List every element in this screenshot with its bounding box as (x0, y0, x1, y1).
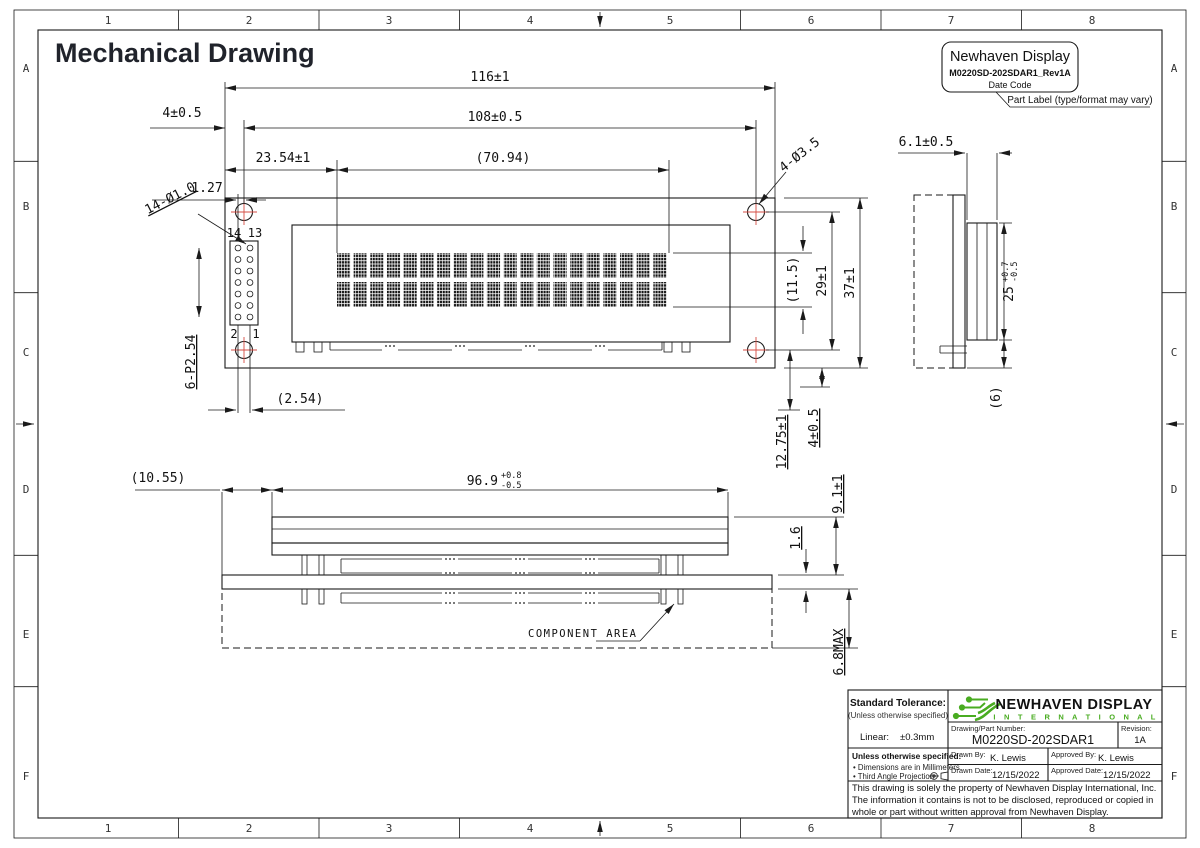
note-projection: • Third Angle Projection (853, 772, 934, 781)
dim-254: (2.54) (277, 392, 324, 407)
dim-connector-pitch: 6-P2.54 (184, 334, 199, 389)
bottom-bezel (272, 517, 728, 543)
dim-969-group: 96.9 +0.8 -0.5 (467, 471, 522, 491)
zone-col: 2 (246, 822, 253, 835)
part-label-datecode: Date Code (988, 80, 1031, 90)
side-display-module (967, 223, 997, 340)
dim-16: 1.6 (789, 526, 804, 549)
zone-row: F (1171, 770, 1178, 783)
zone-col: 8 (1089, 822, 1096, 835)
part-label-box: Newhaven Display M0220SD-202SDAR1_Rev1A … (942, 42, 1153, 107)
side-pcb (953, 195, 965, 368)
zone-col: 6 (808, 822, 815, 835)
connector-outline (230, 241, 258, 325)
dim-969: 96.9 (467, 474, 498, 489)
zone-col: 4 (527, 822, 534, 835)
zone-col: 5 (667, 822, 674, 835)
tolerance-sub: (Unless otherwise specified) (848, 711, 948, 720)
pin-label-2: 2 (230, 327, 237, 341)
zone-row: D (23, 483, 30, 496)
zone-col: 7 (948, 14, 955, 27)
dim-1275: 12.75±1 (775, 415, 790, 470)
zone-col: 4 (527, 14, 534, 27)
dim-108: 108±0.5 (468, 110, 523, 125)
revision-label: Revision: (1121, 724, 1152, 733)
zone-col: 7 (948, 822, 955, 835)
component-area-label: COMPONENT AREA (528, 628, 638, 640)
component-area-outline (222, 575, 772, 648)
dim-61: 6.1±0.5 (899, 135, 954, 150)
dim-969-plus: +0.8 (501, 471, 521, 481)
bottom-tabs (296, 342, 690, 352)
logo-subname: I N T E R N A T I O N A L (993, 713, 1158, 722)
zone-col: 2 (246, 14, 253, 27)
newhaven-logo: NEWHAVEN DISPLAY I N T E R N A T I O N A… (953, 697, 1158, 722)
drawn-date-value: 12/15/2022 (992, 770, 1040, 781)
dim-29: 29±1 (815, 265, 830, 296)
drawn-by-value: K. Lewis (990, 753, 1026, 764)
dim-4-pin: 4±0.5 (807, 408, 822, 447)
approved-by-value: K. Lewis (1098, 753, 1134, 764)
zone-col: 8 (1089, 14, 1096, 27)
tolerance-heading: Standard Tolerance: (850, 698, 946, 709)
dim-4-offset: 4±0.5 (162, 106, 201, 121)
zone-col: 3 (386, 14, 393, 27)
dim-7094: (70.94) (476, 151, 531, 166)
zone-row: E (23, 628, 30, 641)
dim-116: 116±1 (470, 70, 509, 85)
zone-col: 6 (808, 14, 815, 27)
side-component-area (914, 195, 953, 368)
zone-row: B (1171, 200, 1178, 213)
logo-name: NEWHAVEN DISPLAY (995, 697, 1152, 713)
bottom-pcb (222, 575, 772, 589)
dim-25-group: 25 +0.7 -0.5 (1001, 262, 1020, 302)
pin-label-13: 13 (248, 226, 262, 240)
dim-1055: (10.55) (131, 471, 186, 486)
drawn-date-label: Drawn Date: (951, 766, 993, 775)
pin-label-1: 1 (252, 327, 259, 341)
dim-25-minus: -0.5 (1010, 262, 1020, 282)
dim-6: (6) (989, 386, 1004, 409)
dim-37: 37±1 (843, 267, 858, 298)
bottom-flange (272, 543, 728, 555)
tolerance-linear-label: Linear: (860, 732, 889, 743)
drawn-by-label: Drawn By: (951, 750, 986, 759)
bottom-rails (341, 558, 659, 604)
zone-row: B (23, 200, 30, 213)
zone-col: 5 (667, 14, 674, 27)
dim-pin-holes: 14-Ø1.0 (143, 180, 199, 218)
mounting-holes (231, 199, 769, 363)
dim-91: 9.1±1 (831, 474, 846, 513)
dim-2354: 23.54±1 (256, 151, 311, 166)
dim-115: (11.5) (786, 257, 801, 304)
zone-row: A (23, 62, 30, 75)
title-block: Standard Tolerance: (Unless otherwise sp… (848, 690, 1162, 818)
approved-date-label: Approved Date: (1051, 766, 1103, 775)
dim-mount-holes: 4-Ø3.5 (777, 135, 823, 176)
zone-row: D (1171, 483, 1178, 496)
zone-row: C (23, 346, 30, 359)
revision-value: 1A (1134, 735, 1146, 746)
part-label-callout: Part Label (type/format may vary) (1007, 95, 1152, 106)
zone-col: 3 (386, 822, 393, 835)
notes-heading: Unless otherwise specified: (852, 751, 961, 761)
page-title: Mechanical Drawing (55, 38, 315, 68)
mechanical-drawing-canvas: 1 2 3 4 5 6 7 8 1 2 3 4 5 6 7 8 A B C D … (0, 0, 1200, 848)
bottom-view: (10.55) 96.9 +0.8 -0.5 9.1±1 1.6 6.8MAX … (131, 471, 858, 675)
zone-row: A (1171, 62, 1178, 75)
dim-969-minus: -0.5 (501, 481, 521, 491)
zone-row: F (23, 770, 30, 783)
zone-col: 1 (105, 14, 112, 27)
drawing-sheet: 1 2 3 4 5 6 7 8 1 2 3 4 5 6 7 8 A B C D … (0, 0, 1200, 848)
connector-holes (235, 245, 253, 320)
zone-col: 1 (105, 822, 112, 835)
lcd-character-matrix (337, 253, 667, 307)
dim-68max: 6.8MAX (832, 628, 847, 675)
approved-by-label: Approved By: (1051, 750, 1096, 759)
third-angle-projection-icon (929, 772, 948, 780)
front-view: 14 13 2 1 (225, 198, 775, 413)
zone-row: C (1171, 346, 1178, 359)
part-label-title: Newhaven Display (950, 49, 1071, 65)
tolerance-linear-value: ±0.3mm (900, 732, 934, 743)
part-number-label: Drawing/Part Number: (951, 724, 1025, 733)
part-label-part: M0220SD-202SDAR1_Rev1A (949, 68, 1071, 78)
dim-25: 25 (1002, 286, 1017, 302)
approved-date-value: 12/15/2022 (1103, 770, 1151, 781)
disclaimer-text: This drawing is solely the property of N… (852, 783, 1158, 817)
side-view: 6.1±0.5 25 +0.7 -0.5 (6) (898, 135, 1020, 410)
note-units: • Dimensions are in Millimeters (853, 763, 960, 772)
part-number: M0220SD-202SDAR1 (972, 733, 1094, 747)
bottom-pins (302, 555, 683, 604)
zone-row: E (1171, 628, 1178, 641)
